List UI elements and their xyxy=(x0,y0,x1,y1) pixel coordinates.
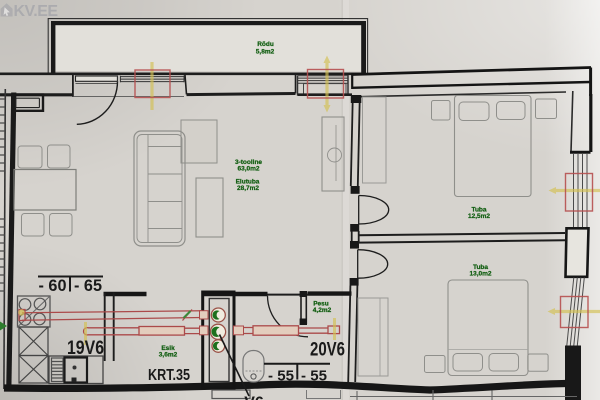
svg-text:20V6: 20V6 xyxy=(310,340,345,361)
svg-text:19V6: 19V6 xyxy=(67,338,104,359)
svg-text:4,2m2: 4,2m2 xyxy=(313,307,332,314)
svg-text:- 60: - 60 xyxy=(39,277,67,295)
svg-text:5,8m2: 5,8m2 xyxy=(256,49,275,56)
svg-text:V6: V6 xyxy=(244,395,264,400)
svg-text:KV.EE: KV.EE xyxy=(14,3,59,20)
svg-text:12,5m2: 12,5m2 xyxy=(468,213,490,220)
svg-text:3,6m2: 3,6m2 xyxy=(159,352,178,359)
svg-text:Rõdu: Rõdu xyxy=(257,41,274,48)
svg-text:KRT.35: KRT.35 xyxy=(148,367,190,384)
svg-text:63,0m2: 63,0m2 xyxy=(237,166,259,173)
svg-text:13,0m2: 13,0m2 xyxy=(469,271,491,278)
svg-text:28,7m2: 28,7m2 xyxy=(237,185,259,192)
svg-text:- 55: - 55 xyxy=(301,368,327,385)
svg-text:- 55: - 55 xyxy=(268,368,294,385)
svg-text:- 65: - 65 xyxy=(74,277,102,295)
